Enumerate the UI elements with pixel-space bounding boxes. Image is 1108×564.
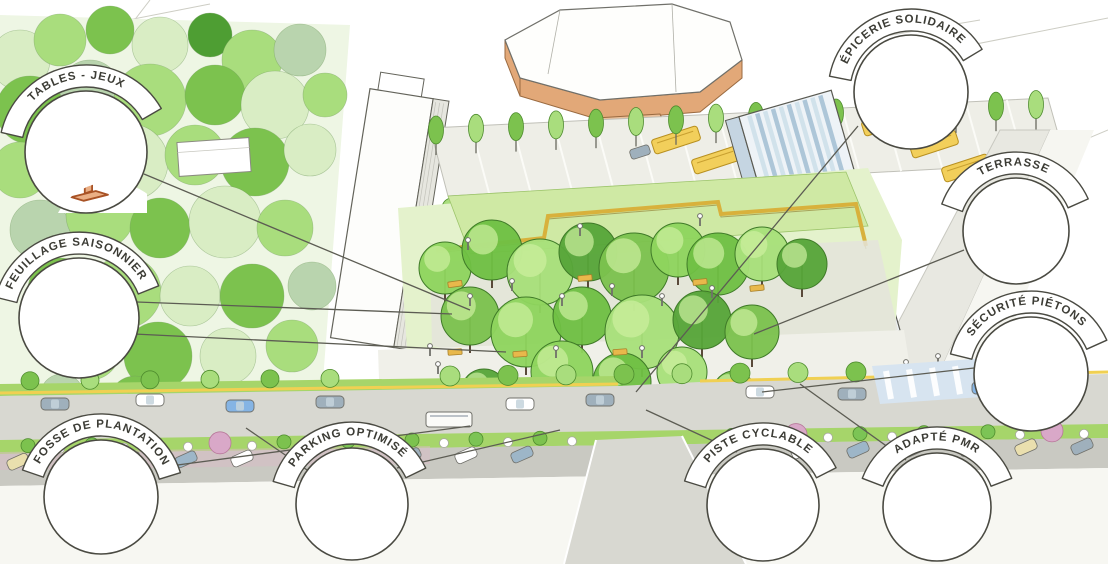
tree xyxy=(614,364,634,384)
tree xyxy=(303,73,347,117)
tree xyxy=(86,6,134,54)
bench xyxy=(613,349,627,356)
shrub xyxy=(248,441,257,450)
tree xyxy=(288,262,336,310)
tree xyxy=(220,264,284,328)
tree xyxy=(34,14,86,66)
sketch-scene: TABLES - JEUXFEUILLAGE SAISONNIERFOSSE D… xyxy=(0,0,1108,564)
tree xyxy=(141,371,159,389)
tree xyxy=(132,17,188,73)
bench xyxy=(578,274,593,281)
tree xyxy=(261,370,279,388)
poplar-tree xyxy=(589,109,604,137)
car xyxy=(316,396,344,408)
bench xyxy=(693,278,708,285)
car xyxy=(136,394,164,406)
tree xyxy=(185,65,245,125)
car xyxy=(506,398,534,410)
tree xyxy=(788,363,808,383)
tree xyxy=(21,372,39,390)
tree xyxy=(321,369,339,387)
car xyxy=(41,398,69,410)
tree xyxy=(160,266,220,326)
tree xyxy=(277,435,291,449)
poplar-tree xyxy=(469,114,484,142)
tree xyxy=(257,200,313,256)
shrub xyxy=(1016,430,1025,439)
shrub xyxy=(824,433,833,442)
tree xyxy=(266,320,318,372)
tree xyxy=(284,124,336,176)
tree xyxy=(846,362,866,382)
tree xyxy=(853,427,867,441)
car xyxy=(746,386,774,398)
low-building xyxy=(177,138,251,177)
shrub xyxy=(440,439,449,448)
poplar-tree xyxy=(509,113,524,141)
tree xyxy=(274,24,326,76)
poplar-tree xyxy=(709,104,724,132)
tree xyxy=(440,366,460,386)
tree xyxy=(730,363,750,383)
bench xyxy=(750,284,765,291)
tree xyxy=(498,365,518,385)
tree xyxy=(556,365,576,385)
car xyxy=(226,400,254,412)
tree xyxy=(201,370,219,388)
shrub xyxy=(184,442,193,451)
shrub xyxy=(1080,429,1089,438)
poplar-tree xyxy=(989,92,1004,120)
car xyxy=(586,394,614,406)
shrub xyxy=(568,437,577,446)
pink-flowering-tree xyxy=(209,432,231,454)
tree xyxy=(981,425,995,439)
poplar-tree xyxy=(1029,91,1044,119)
poplar-tree xyxy=(669,106,684,134)
tree xyxy=(469,432,483,446)
shuttle-bus xyxy=(426,412,472,427)
poplar-tree xyxy=(429,116,444,144)
poplar-tree xyxy=(549,111,564,139)
tree xyxy=(672,364,692,384)
poplar-tree xyxy=(629,108,644,136)
urban-design-sketch: TABLES - JEUXFEUILLAGE SAISONNIERFOSSE D… xyxy=(0,0,1108,564)
car xyxy=(838,388,866,400)
bench xyxy=(513,351,527,358)
